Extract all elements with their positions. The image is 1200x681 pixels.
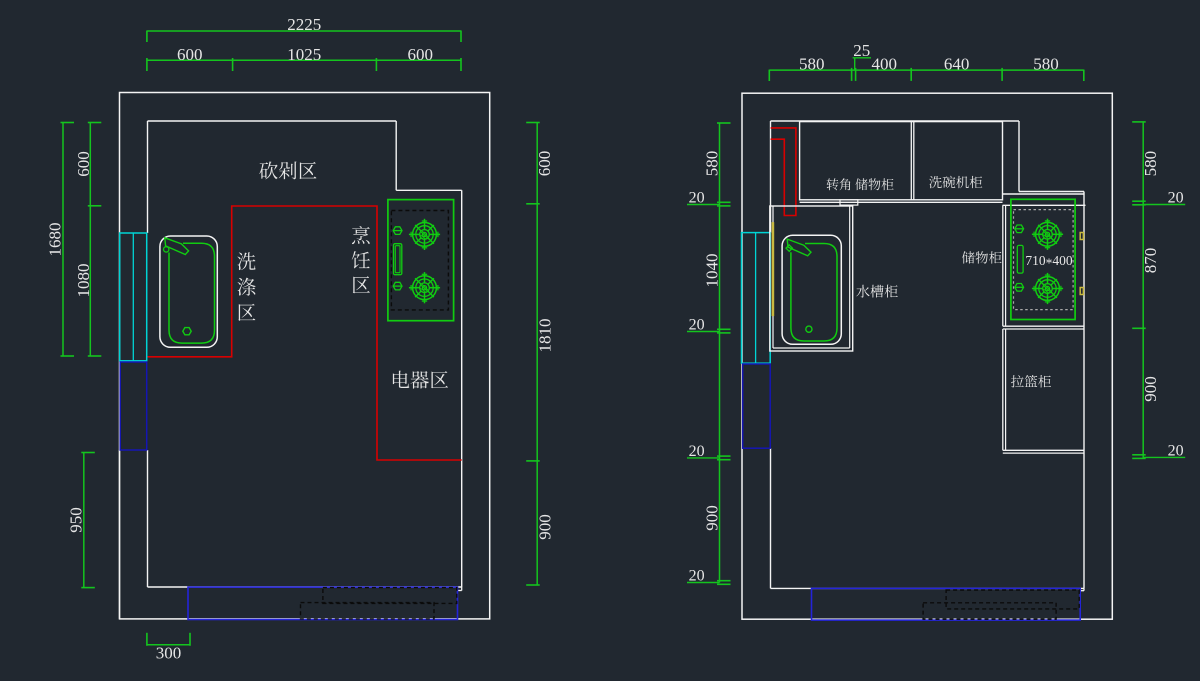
svg-text:20: 20 [689, 443, 705, 460]
svg-text:600: 600 [535, 151, 554, 177]
svg-text:2225: 2225 [287, 15, 321, 34]
svg-text:580: 580 [1141, 151, 1160, 177]
svg-text:900: 900 [536, 514, 555, 540]
svg-text:1025: 1025 [287, 45, 321, 64]
svg-text:20: 20 [689, 190, 705, 207]
svg-text:1040: 1040 [702, 254, 721, 288]
svg-text:950: 950 [67, 507, 86, 533]
svg-text:870: 870 [1141, 248, 1160, 274]
svg-text:1810: 1810 [536, 319, 555, 353]
svg-text:20: 20 [1168, 442, 1184, 459]
svg-text:640: 640 [944, 55, 970, 74]
svg-text:1680: 1680 [45, 223, 64, 257]
svg-text:580: 580 [799, 55, 825, 74]
svg-text:710*400: 710*400 [1025, 253, 1073, 271]
svg-text:300: 300 [156, 644, 182, 663]
svg-text:400: 400 [871, 55, 897, 74]
svg-text:900: 900 [702, 505, 721, 531]
svg-text:20: 20 [689, 317, 705, 334]
svg-text:580: 580 [702, 151, 721, 177]
svg-text:1080: 1080 [74, 264, 93, 298]
svg-text:580: 580 [1033, 55, 1059, 74]
svg-text:600: 600 [177, 45, 203, 64]
svg-text:20: 20 [1168, 190, 1184, 207]
svg-text:600: 600 [74, 151, 93, 177]
svg-text:600: 600 [407, 45, 433, 64]
svg-text:900: 900 [1141, 376, 1160, 402]
svg-text:20: 20 [689, 568, 705, 585]
